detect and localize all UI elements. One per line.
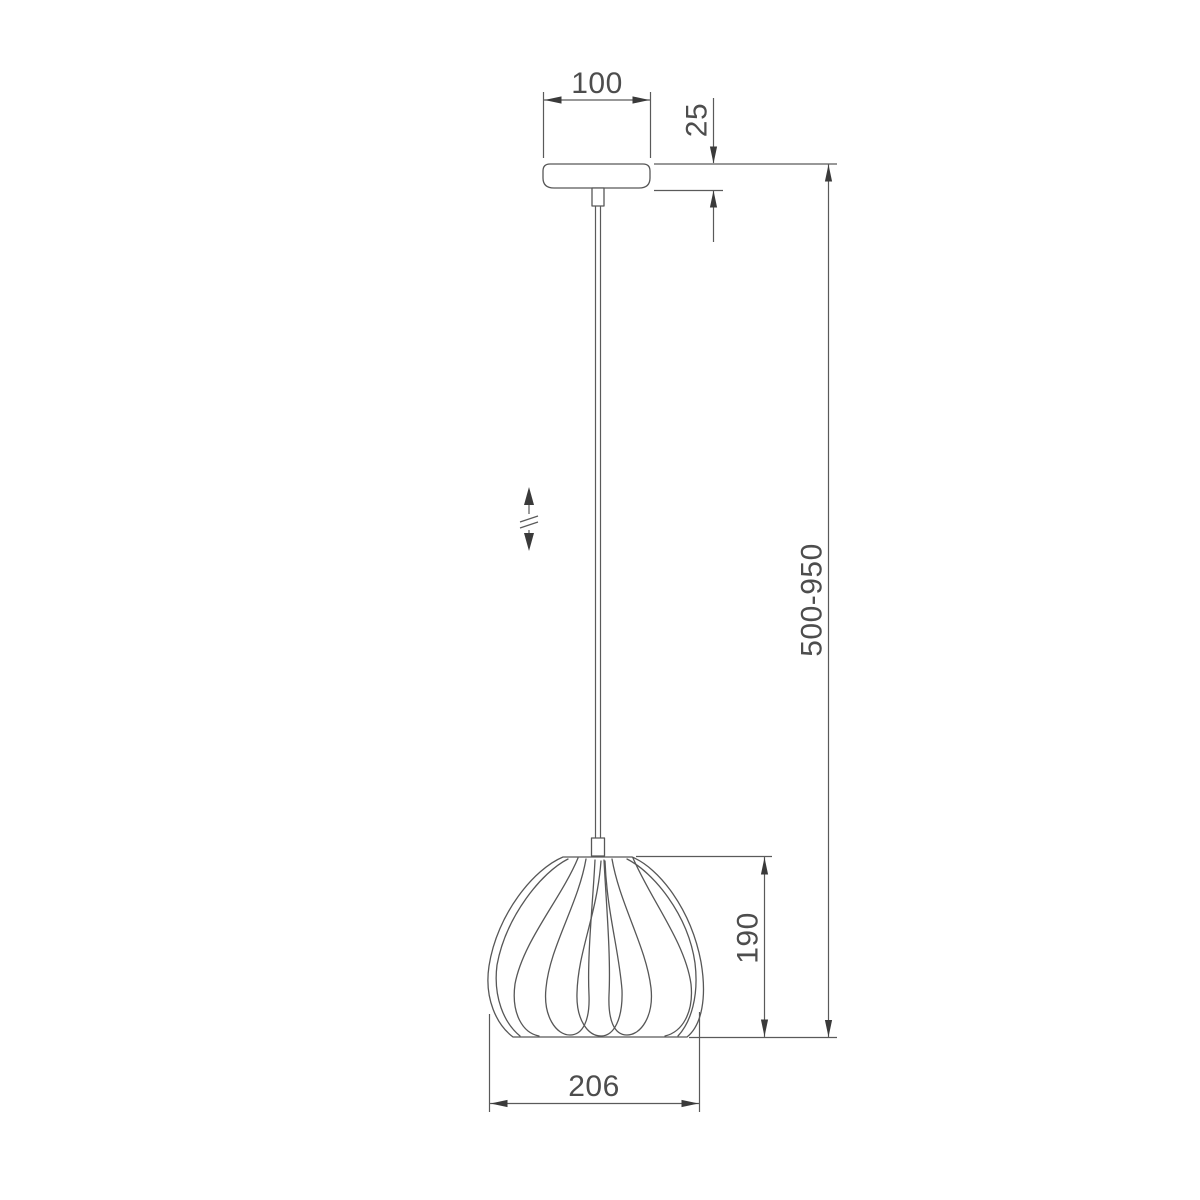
shade-outline bbox=[488, 857, 704, 1037]
arrowhead-left bbox=[491, 1100, 508, 1107]
canopy-cable-grip bbox=[592, 188, 604, 206]
drawing-canvas: 100 25 500-950 190 bbox=[0, 0, 1200, 1200]
arrowhead-down bbox=[761, 1020, 768, 1037]
dim-label-canopy-width: 100 bbox=[571, 67, 623, 100]
arrowhead-right bbox=[633, 96, 650, 103]
suspension-cable bbox=[592, 206, 605, 856]
adjust-up-arrowhead bbox=[524, 487, 534, 505]
adjust-down-arrowhead bbox=[524, 533, 534, 551]
arrowhead-up bbox=[710, 191, 717, 208]
dim-label-suspension-range: 500-950 bbox=[796, 543, 829, 657]
arrowhead-up bbox=[761, 858, 768, 875]
arrowhead-down bbox=[710, 147, 717, 164]
arrowhead-right bbox=[682, 1100, 699, 1107]
dimension-canopy-height: 25 bbox=[654, 98, 723, 242]
arrowhead-up bbox=[825, 165, 832, 182]
dim-label-canopy-height: 25 bbox=[681, 103, 714, 137]
adjust-break-mark-1 bbox=[520, 516, 538, 522]
dim-label-shade-height: 190 bbox=[732, 912, 765, 964]
arrowhead-down bbox=[825, 1020, 832, 1037]
ceiling-canopy bbox=[543, 164, 650, 206]
lampshade bbox=[488, 857, 704, 1037]
dim-label-shade-diameter: 206 bbox=[568, 1070, 620, 1103]
canopy-body bbox=[543, 164, 650, 188]
adjust-break-mark-2 bbox=[520, 522, 538, 528]
height-adjust-icon bbox=[520, 487, 538, 551]
pendant-lamp-dimension-drawing: 100 25 500-950 190 bbox=[0, 0, 1200, 1200]
dimension-canopy-width: 100 bbox=[544, 67, 651, 158]
arrowhead-left bbox=[545, 96, 562, 103]
cable-ferrule bbox=[592, 838, 605, 856]
